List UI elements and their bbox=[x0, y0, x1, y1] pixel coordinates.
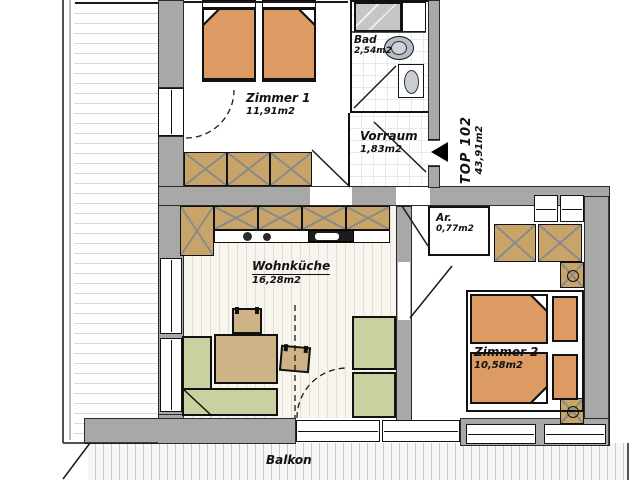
room-name: Balkon bbox=[266, 454, 312, 468]
chair-top bbox=[232, 308, 262, 334]
room-label-zimmer1: Zimmer 1 11,91m2 bbox=[246, 92, 310, 117]
bed-single-2 bbox=[262, 8, 316, 82]
kitchen-wall-cabinet-1 bbox=[184, 152, 227, 186]
kitchen-wall-cabinet-2 bbox=[227, 152, 270, 186]
stove-burner-2 bbox=[263, 233, 271, 241]
window-bottom-living-2 bbox=[382, 420, 460, 442]
daybed-cushion-2 bbox=[352, 372, 396, 418]
room-name: Zimmer 2 bbox=[474, 346, 538, 360]
shower-tray bbox=[354, 2, 402, 32]
floor-plan: Zimmer 1 11,91m2 Bad 2,54m2 Vorraum 1,83… bbox=[0, 0, 640, 480]
door-opening-zimmer1 bbox=[310, 187, 352, 205]
kitchen-corner-cabinet bbox=[180, 206, 214, 256]
kitchen-base-cabinet-1 bbox=[214, 206, 258, 230]
room-label-balkon: Balkon bbox=[266, 454, 312, 468]
bed-pillow-1 bbox=[552, 296, 578, 342]
window-top-right-1 bbox=[534, 195, 558, 222]
room-area: 11,91m2 bbox=[246, 106, 310, 118]
wall-entry-lower bbox=[428, 166, 440, 188]
terrace-deck bbox=[74, 0, 158, 443]
window-top-right-2 bbox=[560, 195, 584, 222]
kitchen-base-cabinet-3 bbox=[302, 206, 346, 230]
unit-id: TOP 102 bbox=[459, 116, 474, 184]
window-bottom-living-1 bbox=[296, 420, 380, 442]
nightstand-circle bbox=[567, 270, 579, 282]
room-label-vorraum: Vorraum 1,83m2 bbox=[360, 130, 418, 155]
sink-basin bbox=[315, 233, 339, 240]
terrace-door-zimmer1 bbox=[158, 88, 184, 136]
window-bottom-zimmer2-1 bbox=[466, 424, 536, 444]
wall-entry-upper bbox=[428, 0, 440, 140]
wall-left-upper bbox=[158, 0, 184, 88]
room-name: Ar. bbox=[436, 212, 474, 224]
terrace-door-living-1 bbox=[160, 258, 182, 334]
bed-pillow-2 bbox=[552, 354, 578, 400]
shower-panel bbox=[402, 2, 426, 32]
room-name: Wohnküche bbox=[252, 260, 330, 275]
bed-single-1 bbox=[202, 8, 256, 82]
door-opening-zimmer2 bbox=[398, 262, 410, 320]
room-area: 16,28m2 bbox=[252, 275, 330, 287]
room-area: 1,83m2 bbox=[360, 144, 418, 156]
kitchen-wall-cabinet-3 bbox=[270, 152, 312, 186]
room-label-abstellraum: Ar. 0,77m2 bbox=[436, 212, 474, 234]
wardrobe-zimmer2-2 bbox=[538, 224, 582, 262]
dining-table bbox=[214, 334, 278, 384]
bed-double-mattress-1 bbox=[470, 294, 548, 344]
wall-right bbox=[584, 196, 610, 432]
room-label-bad: Bad 2,54m2 bbox=[354, 34, 392, 56]
toilet-bowl bbox=[391, 41, 407, 55]
room-area: 2,54m2 bbox=[354, 46, 392, 56]
kitchen-counter bbox=[214, 230, 390, 243]
kitchen-base-cabinet-4 bbox=[346, 206, 390, 230]
kitchen-base-cabinet-2 bbox=[258, 206, 302, 230]
unit-label-top102: TOP 102 43,91m2 bbox=[452, 95, 492, 205]
stove-burner-1 bbox=[243, 232, 252, 241]
room-area: 10,58m2 bbox=[474, 360, 538, 372]
washbasin-bowl bbox=[404, 70, 419, 94]
door-opening-corridor bbox=[396, 187, 430, 205]
room-area: 0,77m2 bbox=[436, 224, 474, 234]
unit-area: 43,91m2 bbox=[474, 126, 485, 175]
headboard-2 bbox=[262, 0, 316, 8]
wardrobe-zimmer2-1 bbox=[494, 224, 536, 262]
window-bottom-zimmer2-2 bbox=[544, 424, 606, 444]
room-label-zimmer2: Zimmer 2 10,58m2 bbox=[474, 346, 538, 371]
washbasin bbox=[398, 64, 424, 98]
room-name: Zimmer 1 bbox=[246, 92, 310, 106]
nightstand-top bbox=[560, 262, 584, 288]
terrace-door-living-2 bbox=[160, 338, 182, 412]
chair-right bbox=[279, 345, 311, 374]
balcony-deck bbox=[88, 443, 628, 480]
entrance-arrow-icon bbox=[431, 142, 448, 162]
daybed-cushion-1 bbox=[352, 316, 396, 370]
wall-bottom-left bbox=[84, 418, 296, 444]
sofa-seat bbox=[182, 388, 278, 416]
room-name: Bad bbox=[354, 34, 392, 46]
kitchen-sink bbox=[308, 230, 354, 242]
balcony-corner-line bbox=[63, 443, 90, 479]
room-label-wohnkueche: Wohnküche 16,28m2 bbox=[252, 256, 330, 286]
headboard-1 bbox=[202, 0, 256, 8]
room-name: Vorraum bbox=[360, 130, 418, 144]
